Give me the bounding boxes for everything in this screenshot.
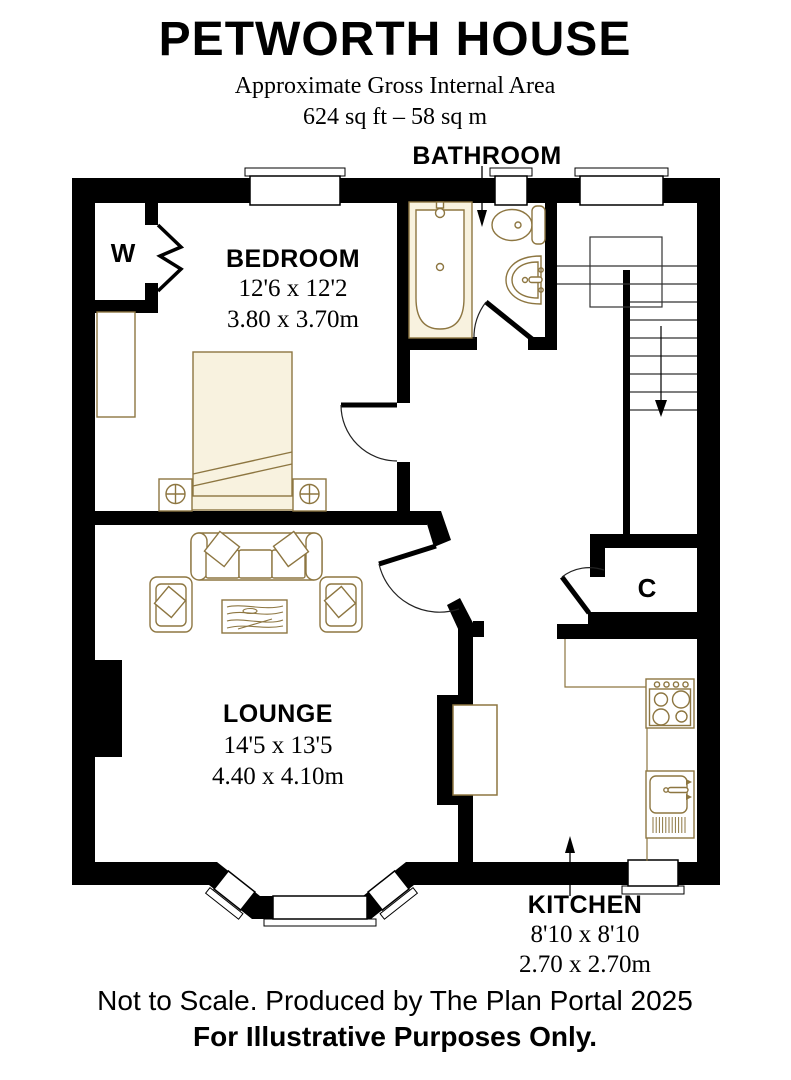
kitchen-window — [628, 860, 678, 886]
wall-bedroom-right-lower — [397, 462, 410, 512]
sofa — [191, 531, 322, 580]
lounge-door-swing — [379, 564, 459, 612]
hob — [646, 679, 694, 728]
wall-bedroom-right-upper — [397, 203, 410, 403]
cupboard-door-leaf — [562, 577, 589, 613]
stairs-window — [580, 176, 663, 205]
kitchen-sink — [646, 771, 694, 838]
bathtub-tap-head — [436, 209, 445, 218]
bedside-table-right — [293, 479, 326, 511]
wall-bathroom-bottom — [397, 337, 477, 350]
bay-window-front-sill — [264, 919, 376, 926]
wall-closet-stub-bottom — [145, 283, 158, 313]
armchair-right — [320, 577, 362, 632]
bedroom-furniture — [97, 312, 326, 511]
wall-kitchen-notch — [473, 621, 484, 637]
wall-under-stairs — [590, 534, 697, 548]
floor-plan-svg — [0, 0, 791, 1080]
wall-closet-stub-top — [145, 203, 158, 225]
toilet-cistern — [532, 206, 545, 244]
bay-window-front — [273, 896, 367, 919]
chimney-breast-lounge — [95, 660, 122, 757]
bedroom-window-sill — [245, 168, 345, 176]
kitchen-fixtures — [453, 639, 694, 861]
appliance — [453, 705, 497, 795]
toilet-bowl — [492, 210, 532, 241]
counter-edge — [565, 639, 647, 861]
bathroom-door-leaf — [486, 302, 532, 339]
bathroom-leader-arrow — [477, 210, 487, 227]
bedroom-window — [250, 176, 340, 205]
wall-right — [697, 178, 720, 885]
bathroom-door-swing — [474, 302, 486, 339]
bathroom-window-sill — [490, 168, 532, 176]
wall-left — [72, 178, 95, 885]
kitchen-window-sill — [622, 886, 684, 894]
kitchen-leader-arrow — [565, 836, 575, 853]
stairs-window-sill — [575, 168, 668, 176]
armchair-left — [150, 577, 192, 632]
wall-bathroom-right — [545, 203, 557, 350]
sink-tap — [668, 788, 688, 793]
wall-cupboard-bottom — [588, 612, 697, 628]
wall-lounge-door-stub-top — [423, 511, 451, 547]
bed — [193, 352, 292, 504]
lounge-furniture — [150, 531, 362, 633]
floor-plan-page: PETWORTH HOUSE Approximate Gross Interna… — [0, 0, 791, 1080]
wall-cupboard-left-stub — [590, 548, 605, 577]
bedroom-door-swing — [341, 405, 397, 461]
stair-down-arrow — [655, 400, 667, 417]
wardrobe-bifold-door — [158, 225, 181, 291]
wardrobe-unit — [97, 312, 135, 417]
bedside-table-left — [159, 479, 192, 511]
coffee-table — [222, 600, 287, 633]
lounge-door-leaf — [379, 546, 436, 564]
stair-rail — [623, 270, 630, 534]
wall-bedroom-lounge — [95, 511, 427, 525]
bed-headboard — [189, 496, 296, 510]
walls — [72, 178, 720, 908]
bathtub-inner — [416, 210, 464, 329]
bathtub-tap — [437, 202, 444, 208]
basin-tap — [529, 277, 542, 283]
bathroom-window — [495, 176, 527, 205]
